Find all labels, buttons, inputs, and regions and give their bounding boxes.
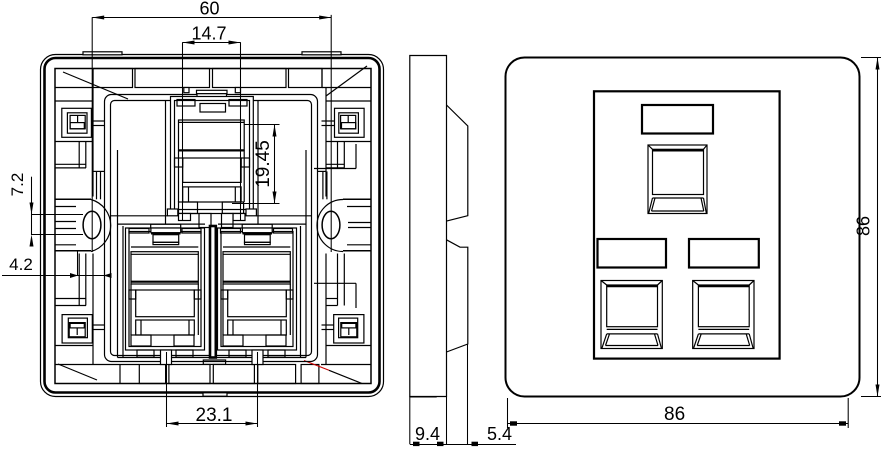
svg-text:7.2: 7.2	[8, 173, 27, 197]
svg-text:86: 86	[854, 216, 874, 236]
svg-text:60: 60	[199, 0, 219, 18]
svg-text:86: 86	[664, 404, 685, 425]
svg-text:9.4: 9.4	[415, 424, 440, 444]
svg-text:23.1: 23.1	[196, 405, 233, 426]
svg-text:4.2: 4.2	[9, 255, 33, 274]
svg-text:14.7: 14.7	[191, 24, 226, 44]
svg-text:19.45: 19.45	[253, 140, 274, 188]
svg-text:5.4: 5.4	[487, 424, 512, 444]
